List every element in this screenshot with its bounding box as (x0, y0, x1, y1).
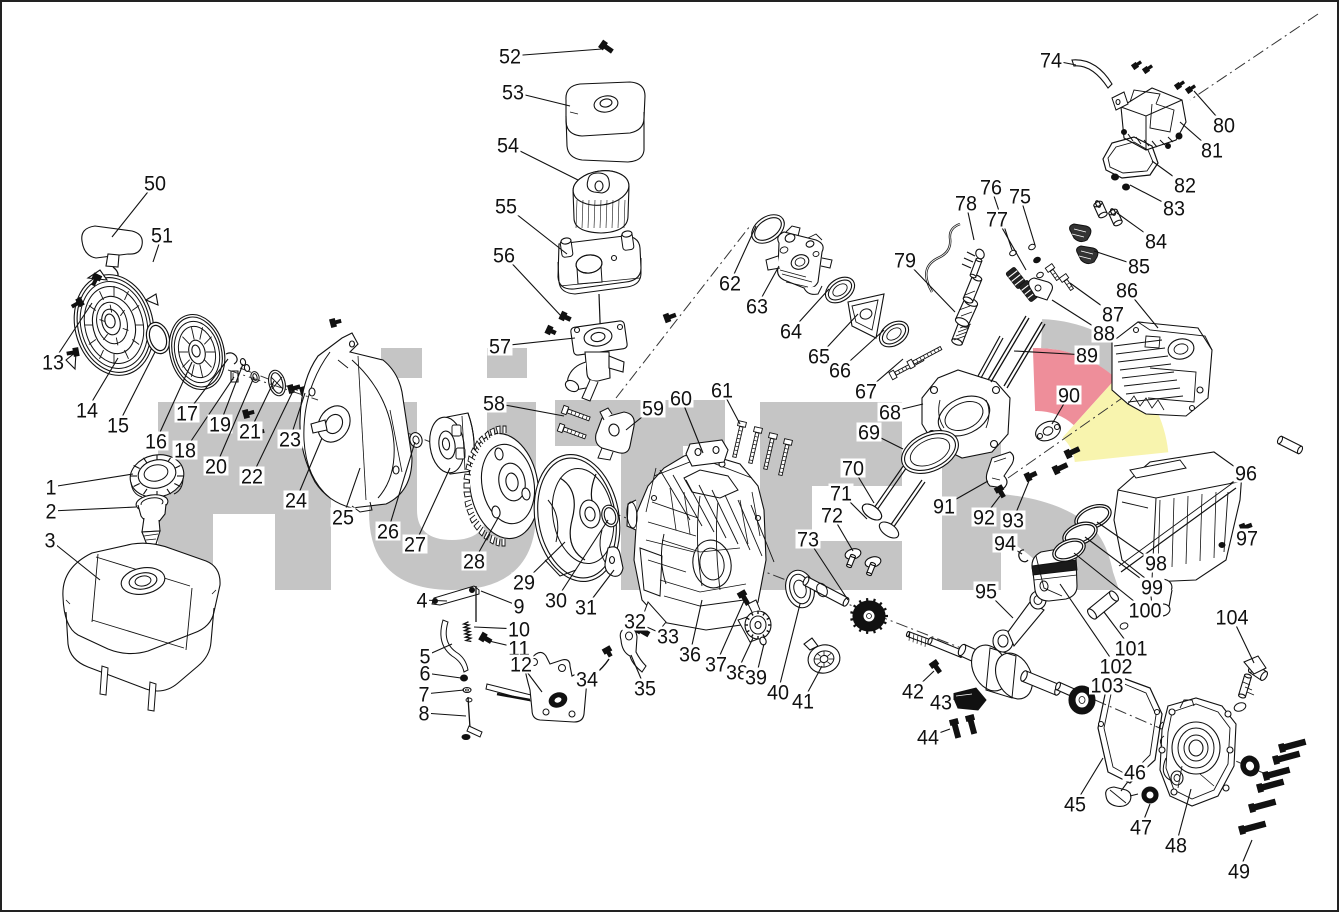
svg-text:84: 84 (1145, 231, 1167, 254)
svg-text:80: 80 (1213, 115, 1235, 138)
svg-text:94: 94 (994, 533, 1016, 556)
svg-text:17: 17 (176, 403, 198, 426)
svg-text:83: 83 (1163, 198, 1185, 221)
svg-text:25: 25 (332, 507, 354, 530)
svg-text:74: 74 (1040, 50, 1062, 73)
svg-text:42: 42 (902, 681, 924, 704)
svg-text:8: 8 (419, 703, 430, 726)
svg-text:52: 52 (499, 46, 521, 69)
svg-text:1: 1 (46, 477, 57, 500)
svg-text:82: 82 (1174, 175, 1196, 198)
svg-text:26: 26 (377, 521, 399, 544)
svg-text:86: 86 (1116, 280, 1138, 303)
svg-text:23: 23 (279, 429, 301, 452)
svg-text:57: 57 (489, 336, 511, 359)
svg-text:78: 78 (955, 193, 977, 216)
svg-text:67: 67 (855, 381, 877, 404)
svg-text:72: 72 (821, 505, 843, 528)
svg-text:46: 46 (1124, 762, 1146, 785)
svg-text:21: 21 (239, 421, 261, 444)
svg-text:40: 40 (767, 682, 789, 705)
svg-text:18: 18 (174, 440, 196, 463)
svg-text:39: 39 (745, 667, 767, 690)
svg-text:64: 64 (780, 321, 802, 344)
svg-text:44: 44 (917, 727, 939, 750)
svg-text:90: 90 (1058, 385, 1080, 408)
svg-text:88: 88 (1093, 323, 1115, 346)
svg-text:50: 50 (144, 173, 166, 196)
svg-text:41: 41 (792, 691, 814, 714)
svg-text:13: 13 (42, 352, 64, 375)
svg-text:66: 66 (829, 360, 851, 383)
svg-text:37: 37 (705, 654, 727, 677)
svg-text:36: 36 (679, 644, 701, 667)
svg-text:60: 60 (670, 388, 692, 411)
svg-text:47: 47 (1130, 817, 1152, 840)
svg-text:27: 27 (404, 534, 426, 557)
svg-text:104: 104 (1216, 607, 1249, 630)
svg-text:61: 61 (711, 380, 733, 403)
svg-text:45: 45 (1064, 794, 1086, 817)
svg-text:63: 63 (746, 296, 768, 319)
svg-text:91: 91 (933, 496, 955, 519)
svg-text:99: 99 (1141, 577, 1163, 600)
svg-text:32: 32 (624, 611, 646, 634)
svg-text:95: 95 (975, 581, 997, 604)
svg-text:54: 54 (497, 135, 519, 158)
svg-text:59: 59 (642, 398, 664, 421)
svg-text:58: 58 (483, 393, 505, 416)
svg-text:51: 51 (151, 225, 173, 248)
svg-text:16: 16 (145, 431, 167, 454)
svg-text:75: 75 (1009, 186, 1031, 209)
svg-text:29: 29 (513, 572, 535, 595)
svg-text:12: 12 (510, 654, 532, 677)
svg-text:30: 30 (545, 590, 567, 613)
svg-text:33: 33 (657, 626, 679, 649)
svg-text:93: 93 (1002, 510, 1024, 533)
svg-text:43: 43 (930, 692, 952, 715)
svg-text:68: 68 (879, 402, 901, 425)
svg-text:92: 92 (973, 507, 995, 530)
svg-text:81: 81 (1201, 140, 1223, 163)
svg-text:6: 6 (420, 663, 431, 686)
svg-text:9: 9 (514, 596, 525, 619)
svg-text:24: 24 (285, 490, 307, 513)
svg-text:76: 76 (980, 177, 1002, 200)
svg-text:28: 28 (463, 551, 485, 574)
svg-text:96: 96 (1235, 463, 1257, 486)
svg-text:15: 15 (107, 415, 129, 438)
svg-text:77: 77 (986, 209, 1008, 232)
svg-text:14: 14 (76, 400, 98, 423)
svg-text:73: 73 (797, 529, 819, 552)
svg-text:19: 19 (209, 414, 231, 437)
svg-text:4: 4 (417, 590, 428, 613)
svg-text:98: 98 (1145, 553, 1167, 576)
svg-text:85: 85 (1128, 256, 1150, 279)
svg-text:79: 79 (894, 250, 916, 273)
svg-text:62: 62 (719, 273, 741, 296)
svg-text:34: 34 (576, 669, 598, 692)
svg-text:3: 3 (45, 530, 56, 553)
svg-text:56: 56 (493, 245, 515, 268)
svg-text:35: 35 (634, 678, 656, 701)
svg-text:100: 100 (1129, 600, 1162, 623)
svg-text:53: 53 (502, 82, 524, 105)
svg-text:97: 97 (1236, 528, 1258, 551)
svg-text:22: 22 (241, 466, 263, 489)
svg-text:49: 49 (1228, 861, 1250, 884)
svg-text:69: 69 (858, 422, 880, 445)
svg-text:65: 65 (808, 346, 830, 369)
svg-text:89: 89 (1076, 345, 1098, 368)
svg-text:70: 70 (842, 458, 864, 481)
svg-text:31: 31 (575, 597, 597, 620)
svg-text:2: 2 (46, 501, 57, 524)
svg-text:55: 55 (495, 196, 517, 219)
svg-text:20: 20 (205, 456, 227, 479)
svg-text:48: 48 (1165, 835, 1187, 858)
svg-text:103: 103 (1091, 675, 1124, 698)
svg-text:71: 71 (830, 483, 852, 506)
